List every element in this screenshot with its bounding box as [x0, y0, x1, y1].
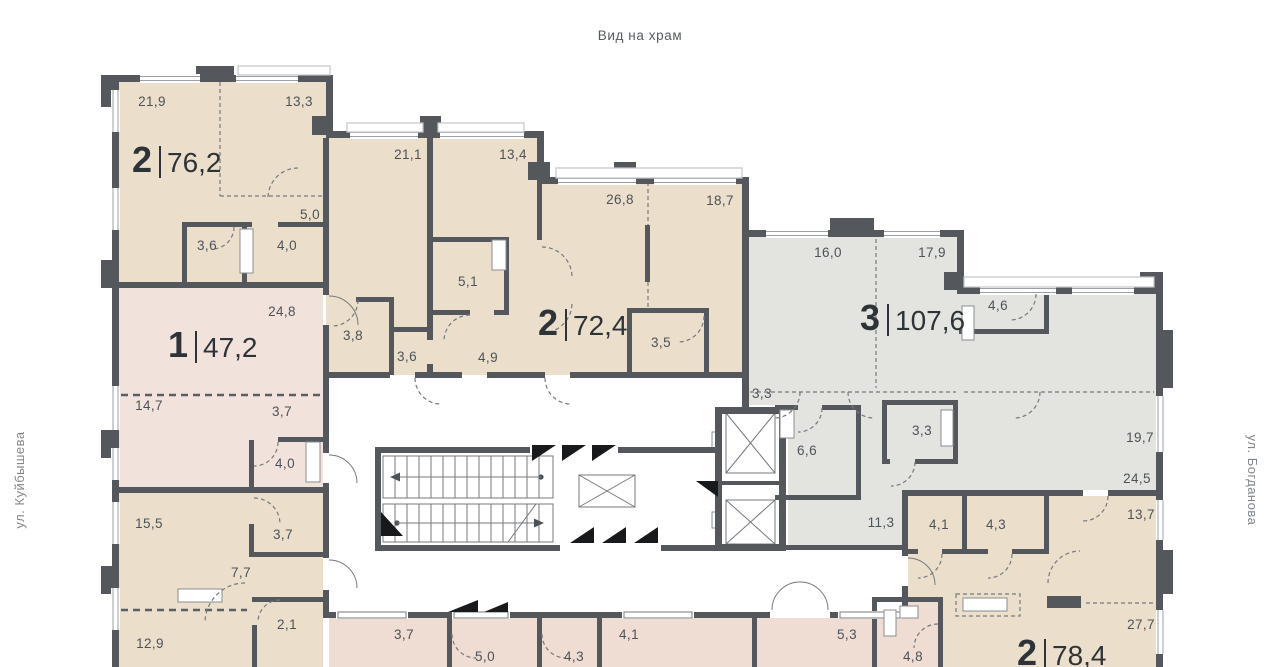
room-area: 15,5 — [135, 516, 163, 531]
svg-text:3: 3 — [860, 297, 880, 338]
room-area: 13,7 — [1127, 507, 1155, 522]
room-area: 27,7 — [1127, 617, 1155, 632]
window — [111, 502, 120, 544]
room-area: 5,0 — [300, 207, 320, 222]
room-area: 4,3 — [986, 517, 1006, 532]
room-area: 4,3 — [564, 649, 584, 664]
room-area: 3,7 — [394, 627, 414, 642]
svg-text:1: 1 — [168, 324, 188, 365]
room-area: 18,7 — [706, 193, 734, 208]
room-area: 3,7 — [273, 527, 293, 542]
room-area: 6,6 — [797, 443, 817, 458]
room-area: 4,0 — [277, 238, 297, 253]
room-area: 3,6 — [197, 238, 217, 253]
room-area: 4,1 — [929, 517, 949, 532]
room-area: 3,5 — [651, 335, 671, 350]
room-area: 16,0 — [814, 245, 842, 260]
window — [766, 229, 828, 238]
window — [111, 90, 120, 132]
window — [111, 386, 120, 430]
window — [336, 611, 408, 619]
floor-plan: Вид на храм ул. Куйбышева ул. Богданова … — [0, 0, 1280, 667]
room-area: 7,7 — [231, 565, 251, 580]
room-area: 3,8 — [343, 328, 363, 343]
window — [1156, 500, 1165, 540]
room-area: 17,9 — [918, 245, 946, 260]
street-label-left: ул. Куйбышева — [12, 431, 27, 529]
room-area: 4,6 — [988, 298, 1008, 313]
room-area: 3,3 — [752, 386, 772, 401]
room-area: 3,7 — [272, 404, 292, 419]
room-area: 21,9 — [138, 94, 166, 109]
svg-text:2: 2 — [1017, 632, 1037, 667]
window — [452, 611, 510, 619]
room-area: 4,9 — [478, 350, 498, 365]
room-area: 26,8 — [606, 192, 634, 207]
svg-text:78,4: 78,4 — [1052, 640, 1107, 667]
svg-text:76,2: 76,2 — [167, 147, 222, 178]
room-area: 14,7 — [135, 398, 163, 413]
room-area: 3,6 — [397, 349, 417, 364]
room-area: 4,0 — [275, 456, 295, 471]
svg-text:2: 2 — [538, 302, 558, 343]
window — [140, 74, 200, 83]
room-area: 21,1 — [394, 147, 422, 162]
room-area: 5,0 — [475, 649, 495, 664]
svg-text:72,4: 72,4 — [573, 310, 628, 341]
room-area: 12,9 — [136, 636, 164, 651]
room-area: 4,8 — [903, 649, 923, 664]
room-area: 24,5 — [1123, 471, 1151, 486]
window — [111, 588, 120, 630]
window — [884, 229, 940, 238]
window — [1156, 396, 1165, 452]
room-area: 11,3 — [868, 515, 895, 530]
svg-text:2: 2 — [132, 139, 152, 180]
window — [111, 448, 120, 480]
svg-text:107,6: 107,6 — [895, 305, 965, 336]
room-area: 2,1 — [277, 617, 297, 632]
window — [622, 611, 694, 619]
view-caption: Вид на храм — [598, 28, 683, 43]
svg-text:47,2: 47,2 — [203, 332, 258, 363]
room-area: 3,3 — [912, 423, 932, 438]
window — [1156, 610, 1165, 654]
room-area: 24,8 — [268, 304, 296, 319]
room-area: 13,4 — [499, 147, 527, 162]
room-area: 19,7 — [1126, 430, 1154, 445]
room-area: 5,1 — [458, 274, 478, 289]
window — [111, 188, 120, 230]
room-area: 13,3 — [285, 94, 313, 109]
room-area: 4,1 — [619, 627, 639, 642]
street-label-right: ул. Богданова — [1245, 435, 1260, 526]
room-area: 5,3 — [837, 627, 857, 642]
floor-plan-page: Вид на храм ул. Куйбышева ул. Богданова … — [0, 0, 1280, 667]
